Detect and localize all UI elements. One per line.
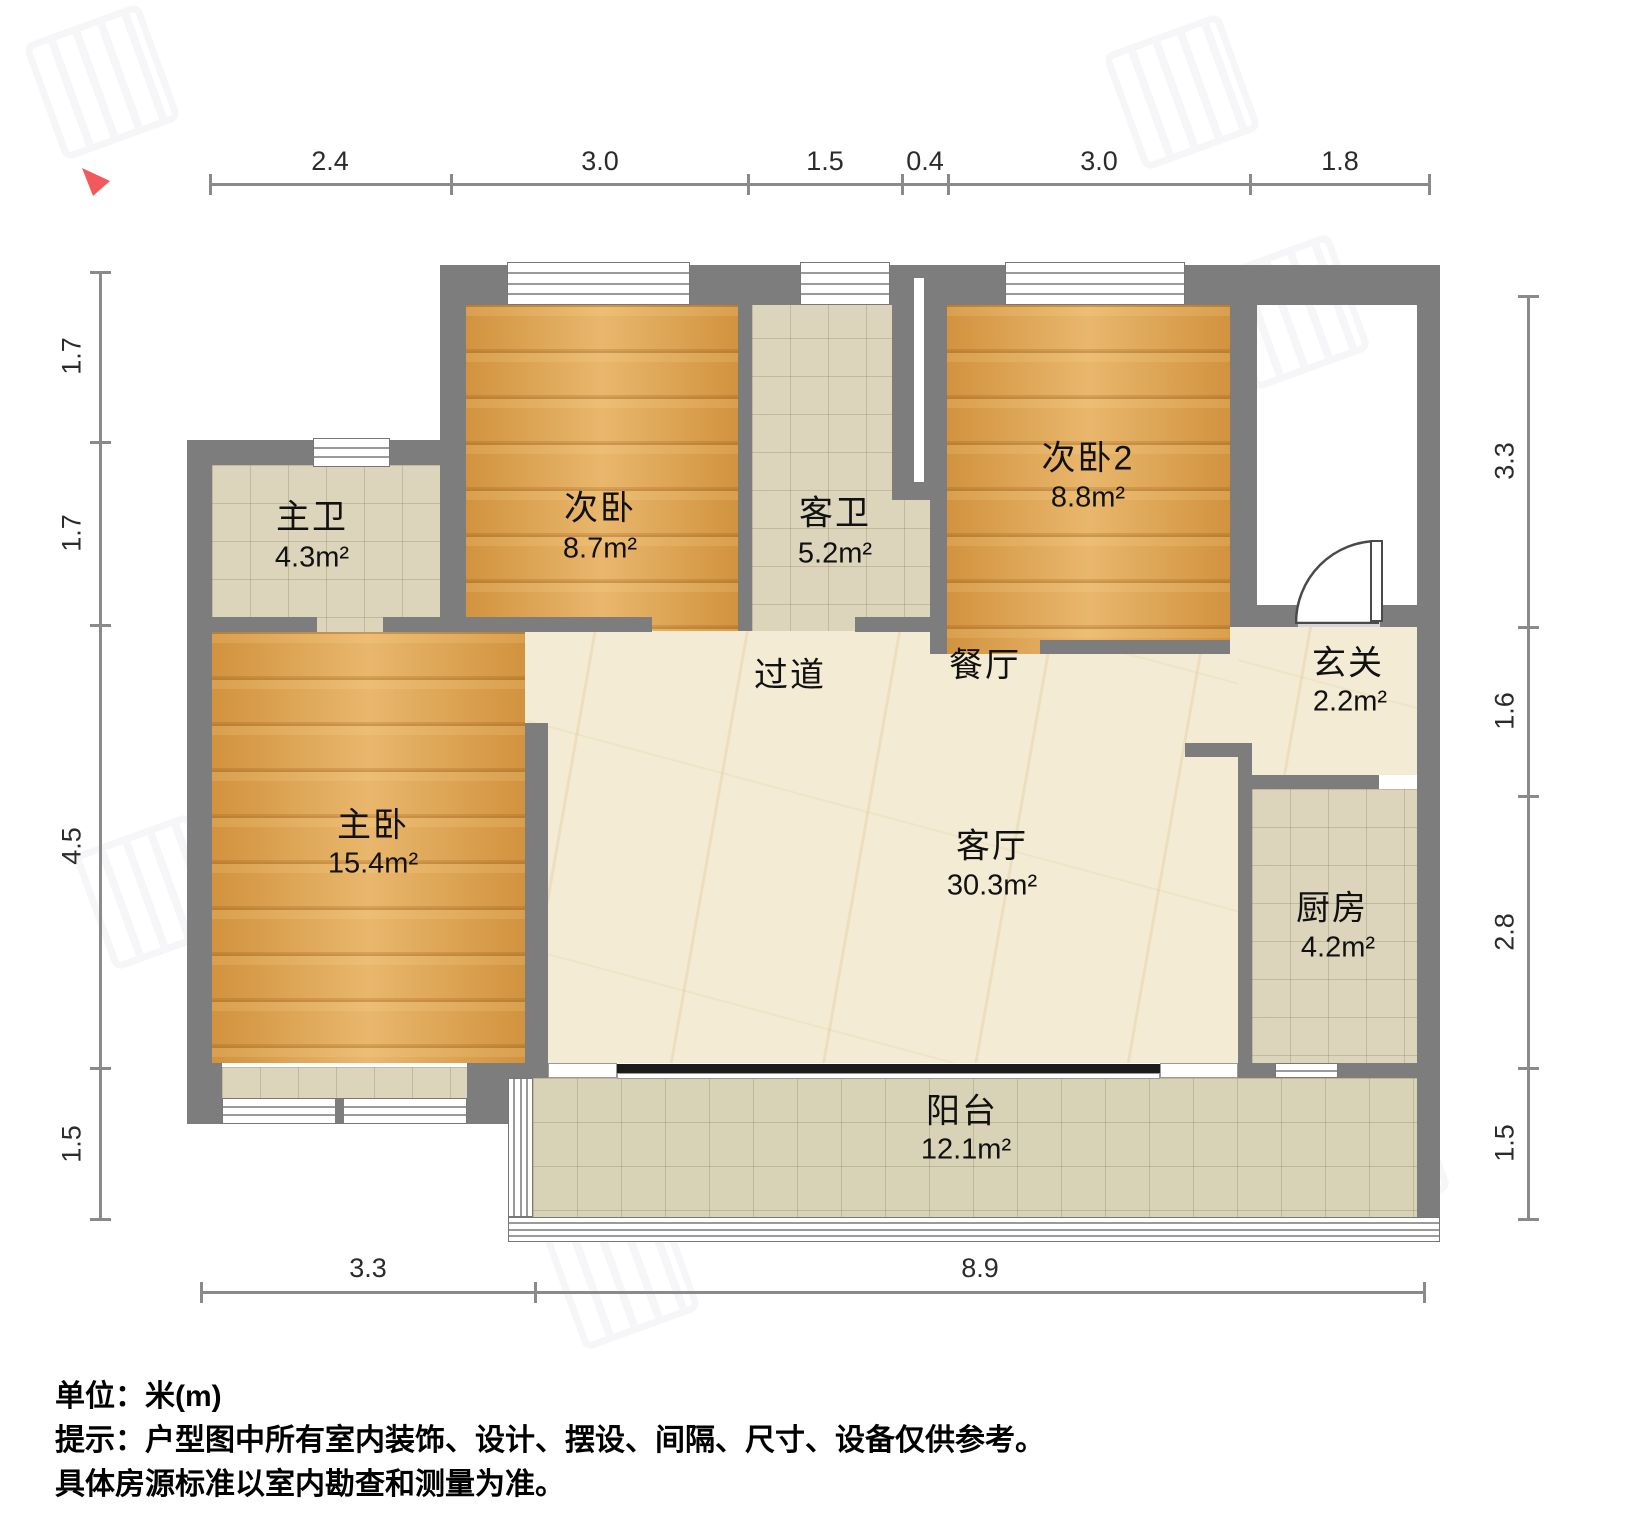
footer-unit-line: 单位：米(m) — [55, 1375, 1045, 1419]
tick — [534, 1282, 537, 1303]
room-label-bedroom3: 次卧2 — [1042, 431, 1135, 480]
wall-left-outer — [187, 440, 212, 1090]
window-master-bath — [313, 438, 390, 467]
wall — [1380, 605, 1440, 627]
dimension-line-bottom — [201, 1291, 1425, 1294]
watermark — [23, 3, 182, 162]
dim-left-1: 1.7 — [57, 337, 88, 375]
dim-top-6: 1.8 — [1321, 146, 1359, 177]
floor-bedroom2 — [466, 305, 738, 631]
dim-right-2: 1.6 — [1490, 692, 1521, 730]
balcony-door-sill-right — [1160, 1063, 1238, 1078]
dim-top-4: 0.4 — [906, 146, 944, 177]
dimension-line-left — [99, 272, 102, 1220]
dim-top-3: 1.5 — [806, 146, 844, 177]
floor-living-dining-hall — [525, 617, 1262, 1063]
dim-right-3: 2.8 — [1490, 913, 1521, 951]
tick — [1423, 1282, 1426, 1303]
entry-door-swing-arc — [1295, 540, 1379, 624]
tick — [90, 441, 111, 444]
wall — [1238, 1063, 1440, 1078]
room-label-hallway: 过道 — [754, 648, 826, 697]
wall — [466, 617, 652, 632]
north-pointer-icon — [75, 160, 120, 205]
room-label-master-bedroom: 主卧 — [337, 798, 409, 847]
window-balcony-front — [508, 1217, 1440, 1242]
dimension-line-right — [1527, 296, 1530, 1219]
wall — [1238, 743, 1252, 1063]
dim-right-4: 1.5 — [1490, 1124, 1521, 1162]
wall — [855, 617, 947, 632]
room-area-master-bath: 4.3m² — [275, 542, 349, 575]
shaft-opening — [914, 278, 924, 482]
bay-window-master — [222, 1098, 467, 1124]
window-kitchen — [1275, 1063, 1338, 1078]
tick — [1518, 1218, 1539, 1221]
tick — [947, 174, 950, 195]
room-area-living: 30.3m² — [947, 870, 1037, 903]
wall — [533, 1063, 548, 1078]
tick — [1428, 174, 1431, 195]
room-label-dining: 餐厅 — [949, 638, 1021, 687]
entry-door-leaf — [1370, 540, 1383, 622]
wall — [738, 300, 752, 631]
wall — [1040, 640, 1230, 654]
tick — [1518, 1067, 1539, 1070]
wall — [440, 265, 466, 631]
footer-tip-line1: 提示：户型图中所有室内装饰、设计、摆设、间隔、尺寸、设备仅供参考。 — [55, 1419, 1045, 1463]
dim-right-1: 3.3 — [1490, 442, 1521, 480]
wall — [525, 723, 548, 1063]
room-area-bedroom3: 8.8m² — [1051, 482, 1125, 515]
dim-left-2: 1.7 — [57, 514, 88, 552]
tick — [90, 1067, 111, 1070]
room-label-master-bath: 主卫 — [276, 490, 348, 539]
tick — [1518, 795, 1539, 798]
room-label-living: 客厅 — [956, 819, 1028, 868]
tick — [1518, 295, 1539, 298]
dim-top-2: 3.0 — [581, 146, 619, 177]
wall — [187, 617, 317, 632]
window-balcony-left — [508, 1078, 533, 1217]
bay-window-mullion — [335, 1099, 344, 1123]
floor-bay-window — [222, 1067, 467, 1098]
footer-tip-line2: 具体房源标准以室内勘查和测量为准。 — [55, 1463, 1045, 1507]
room-area-guest-bath: 5.2m² — [798, 538, 872, 571]
room-area-balcony: 12.1m² — [921, 1134, 1011, 1167]
tick — [90, 624, 111, 627]
dim-top-1: 2.4 — [311, 146, 349, 177]
tick — [209, 174, 212, 195]
room-area-bedroom2: 8.7m² — [563, 533, 637, 566]
room-label-bedroom2: 次卧 — [564, 481, 636, 530]
balcony-sliding-door — [617, 1064, 1160, 1073]
dim-top-5: 3.0 — [1080, 146, 1118, 177]
watermark — [1103, 13, 1262, 172]
dim-left-4: 1.5 — [57, 1125, 88, 1163]
room-label-kitchen: 厨房 — [1296, 881, 1368, 930]
room-area-kitchen: 4.2m² — [1301, 932, 1375, 965]
tick — [1249, 174, 1252, 195]
window-bedroom3 — [1005, 262, 1185, 305]
tick — [90, 271, 111, 274]
tick — [200, 1282, 203, 1303]
wall — [1230, 265, 1257, 627]
window-guest-bath — [800, 262, 890, 305]
floor-bedroom3 — [947, 305, 1230, 654]
wall — [383, 617, 466, 632]
tick — [450, 174, 453, 195]
wall — [1257, 605, 1298, 627]
dimension-line-top — [210, 183, 1430, 186]
room-area-master-bedroom: 15.4m² — [328, 848, 418, 881]
tick — [901, 174, 904, 195]
floor-plan: 次卧 8.7m² 客卫 5.2m² 次卧2 8.8m² 主卫 4.3m² 主卧 … — [0, 0, 1628, 1516]
footer-disclaimer: 单位：米(m) 提示：户型图中所有室内装饰、设计、摆设、间隔、尺寸、设备仅供参考… — [55, 1375, 1045, 1507]
tick — [747, 174, 750, 195]
tick — [1518, 626, 1539, 629]
wall — [1262, 265, 1440, 305]
balcony-door-sill — [617, 1073, 1160, 1079]
wall — [187, 1063, 222, 1124]
window-bedroom2 — [507, 262, 690, 305]
dim-bottom-1: 3.3 — [349, 1253, 387, 1284]
wall-right-outer — [1417, 265, 1440, 1240]
room-label-guest-bath: 客卫 — [799, 486, 871, 535]
kitchen-door-opening — [1379, 775, 1417, 789]
tick — [90, 1218, 111, 1221]
room-label-entry: 玄关 — [1312, 636, 1384, 685]
dim-bottom-2: 8.9 — [961, 1253, 999, 1284]
dim-left-3: 4.5 — [57, 827, 88, 865]
room-area-entry: 2.2m² — [1313, 686, 1387, 719]
wall — [1252, 775, 1379, 789]
room-label-balcony: 阳台 — [926, 1084, 998, 1133]
balcony-door-sill-left — [548, 1063, 617, 1078]
